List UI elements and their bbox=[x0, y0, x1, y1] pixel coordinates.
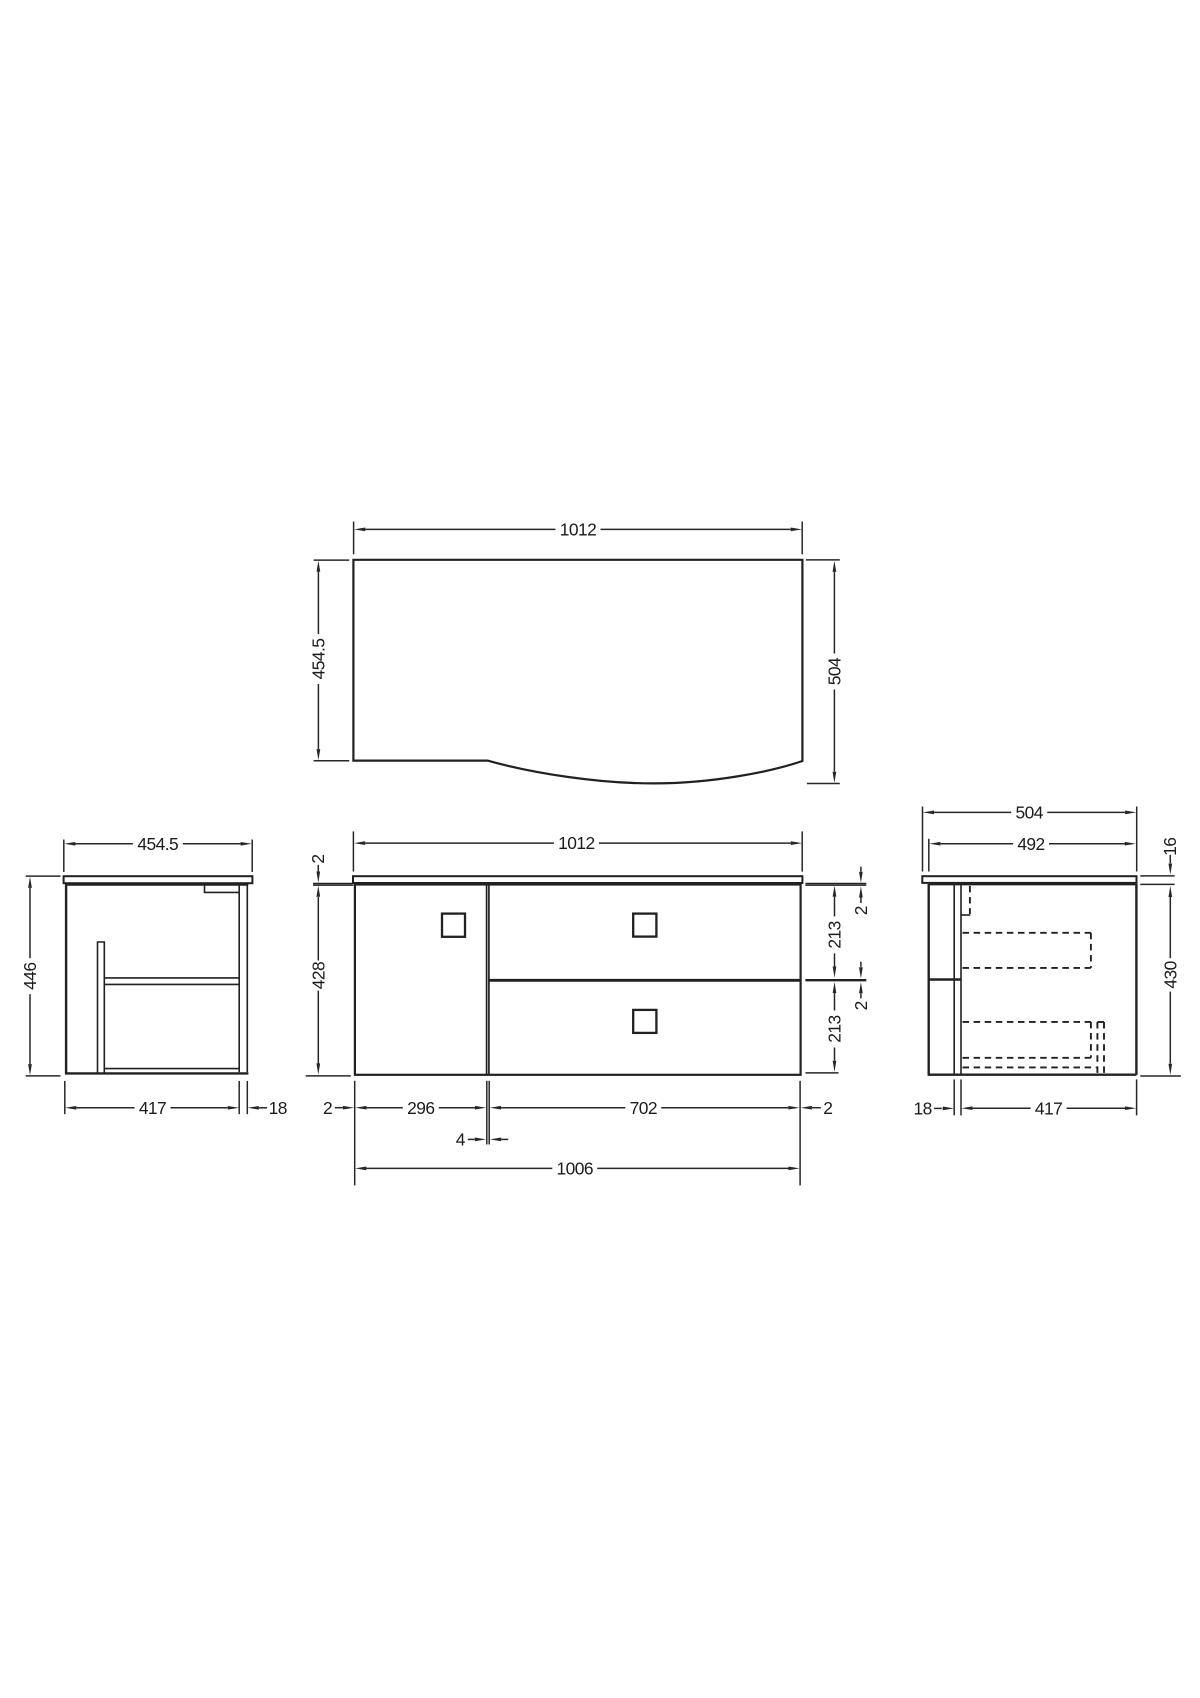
svg-text:1006: 1006 bbox=[557, 1159, 594, 1179]
svg-text:1012: 1012 bbox=[560, 520, 597, 540]
svg-text:702: 702 bbox=[630, 1098, 657, 1118]
svg-text:296: 296 bbox=[407, 1098, 434, 1118]
svg-text:16: 16 bbox=[1160, 838, 1180, 856]
svg-text:213: 213 bbox=[825, 921, 845, 948]
svg-text:2: 2 bbox=[851, 1001, 871, 1010]
svg-text:428: 428 bbox=[308, 962, 328, 989]
svg-text:213: 213 bbox=[825, 1015, 845, 1042]
svg-text:2: 2 bbox=[323, 1098, 332, 1118]
svg-text:417: 417 bbox=[139, 1098, 166, 1118]
svg-text:18: 18 bbox=[913, 1099, 931, 1119]
svg-text:504: 504 bbox=[825, 657, 845, 685]
svg-text:18: 18 bbox=[269, 1098, 287, 1118]
svg-text:504: 504 bbox=[1016, 803, 1044, 823]
svg-text:417: 417 bbox=[1035, 1098, 1062, 1118]
svg-text:454.5: 454.5 bbox=[137, 834, 178, 854]
svg-text:2: 2 bbox=[308, 855, 328, 864]
svg-text:454.5: 454.5 bbox=[309, 639, 329, 680]
svg-text:4: 4 bbox=[456, 1130, 466, 1150]
svg-text:446: 446 bbox=[20, 963, 40, 990]
svg-text:2: 2 bbox=[851, 906, 871, 915]
svg-text:430: 430 bbox=[1160, 961, 1180, 988]
svg-text:492: 492 bbox=[1017, 834, 1044, 854]
svg-text:1012: 1012 bbox=[558, 833, 595, 853]
svg-text:2: 2 bbox=[823, 1098, 832, 1118]
